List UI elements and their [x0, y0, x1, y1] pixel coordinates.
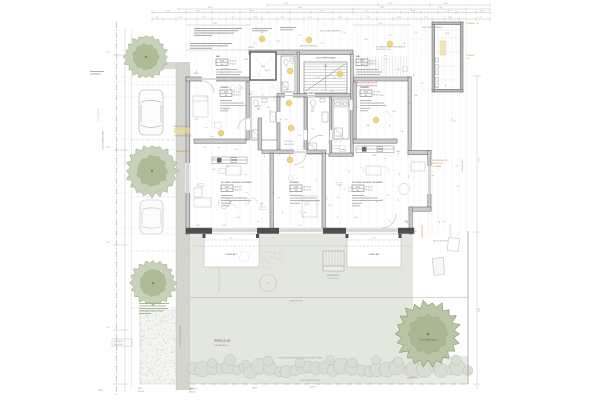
svg-text:562.9: 562.9 [138, 388, 142, 390]
svg-text:563.70: 563.70 [310, 387, 315, 389]
svg-text:2.625: 2.625 [236, 217, 240, 219]
svg-text:6.00: 6.00 [444, 3, 448, 5]
svg-text:1.735: 1.735 [270, 225, 274, 227]
svg-text:12.5: 12.5 [224, 109, 227, 111]
svg-text:FLÄCHE 1447 m²: FLÄCHE 1447 m² [214, 344, 229, 347]
svg-text:4.50: 4.50 [194, 119, 197, 121]
svg-text:2.35: 2.35 [229, 238, 232, 240]
svg-text:563.85: 563.85 [252, 388, 257, 390]
svg-text:BAD: BAD [216, 55, 221, 58]
svg-text:1.25: 1.25 [178, 17, 182, 19]
svg-text:0.88: 0.88 [364, 39, 367, 41]
svg-text:1.51: 1.51 [202, 17, 206, 19]
svg-text:0.25: 0.25 [300, 167, 303, 169]
svg-text:GRENZPUNKT: GRENZPUNKT [114, 341, 124, 343]
svg-text:3.64: 3.64 [384, 59, 387, 61]
svg-text:1.41: 1.41 [308, 17, 312, 19]
svg-text:1.40: 1.40 [230, 17, 234, 19]
svg-text:KOCHEN / ESSEN / WOHNEN: KOCHEN / ESSEN / WOHNEN [221, 182, 252, 184]
svg-text:1.36: 1.36 [338, 17, 342, 19]
svg-text:36: 36 [156, 17, 158, 19]
svg-text:562.75: 562.75 [98, 390, 103, 392]
svg-text:5.52: 5.52 [107, 327, 111, 329]
svg-text:10-07 DIELE: 10-07 DIELE [284, 141, 293, 143]
svg-text:2.41: 2.41 [364, 11, 368, 13]
svg-text:2.625: 2.625 [392, 111, 396, 113]
svg-text:12.10: 12.10 [106, 52, 111, 54]
svg-text:GRENZE 563.4: GRENZE 563.4 [407, 378, 419, 380]
svg-text:5.46: 5.46 [400, 131, 403, 133]
svg-text:2.35: 2.35 [372, 238, 375, 240]
svg-text:1.36: 1.36 [280, 17, 284, 19]
svg-text:2.625: 2.625 [290, 63, 294, 65]
svg-text:10-03: 10-03 [294, 187, 298, 189]
svg-text:HOEHE MIN. 1.00 M: HOEHE MIN. 1.00 M [376, 49, 391, 51]
svg-text:10-05: 10-05 [257, 106, 261, 108]
svg-text:10-06 TREPPENHAUS: 10-06 TREPPENHAUS [316, 57, 336, 60]
svg-text:2.625: 2.625 [196, 225, 200, 227]
svg-text:4.50: 4.50 [366, 125, 369, 127]
svg-text:5.46: 5.46 [266, 107, 269, 109]
svg-text:12.5: 12.5 [388, 35, 391, 37]
svg-text:1.20: 1.20 [282, 87, 285, 89]
svg-text:10-04: 10-04 [220, 61, 224, 63]
svg-text:2.10: 2.10 [284, 3, 288, 5]
svg-text:5.80: 5.80 [380, 7, 384, 9]
svg-text:SCHUTZ H 1.80: SCHUTZ H 1.80 [432, 163, 443, 165]
svg-text:20-01: 20-01 [356, 187, 360, 189]
svg-text:2.36: 2.36 [438, 7, 442, 9]
svg-text:6 STG 17.5/28: 6 STG 17.5/28 [328, 278, 338, 280]
svg-text:2.625: 2.625 [354, 107, 358, 109]
svg-text:2.725: 2.725 [250, 11, 255, 13]
svg-text:4.50: 4.50 [414, 95, 417, 97]
svg-text:3.64: 3.64 [213, 23, 217, 25]
svg-text:2.01: 2.01 [414, 32, 417, 34]
svg-text:1.20: 1.20 [342, 189, 345, 191]
svg-text:0.88: 0.88 [260, 32, 263, 34]
svg-text:10-02: 10-02 [224, 92, 228, 94]
svg-text:4.50: 4.50 [316, 77, 319, 79]
svg-text:5.46: 5.46 [330, 91, 333, 93]
svg-text:0.25: 0.25 [354, 217, 357, 219]
svg-text:STANDORT RGE: STANDORT RGE [289, 300, 303, 303]
svg-text:1.11: 1.11 [424, 17, 428, 19]
svg-text:2.01: 2.01 [386, 195, 389, 197]
svg-text:2.41: 2.41 [298, 35, 301, 37]
svg-text:1 : 1 0 0 B A U M: 1 : 1 0 0 B A U M [97, 108, 100, 121]
svg-text:1.61: 1.61 [366, 17, 370, 19]
svg-text:ZIMMER: ZIMMER [220, 87, 229, 89]
svg-text:21.10: 21.10 [388, 3, 393, 5]
svg-text:0.88: 0.88 [244, 59, 247, 61]
svg-text:15.35: 15.35 [479, 158, 481, 163]
svg-text:3.64: 3.64 [380, 95, 383, 97]
svg-text:9.87: 9.87 [107, 242, 111, 244]
svg-text:20-09: 20-09 [445, 33, 449, 35]
svg-text:KOCHEN / ESSEN / WOHNEN: KOCHEN / ESSEN / WOHNEN [352, 182, 383, 184]
svg-text:1.37: 1.37 [446, 11, 450, 13]
svg-text:10-01: 10-01 [225, 187, 229, 189]
svg-text:4.21: 4.21 [320, 11, 324, 13]
svg-text:20-05: 20-05 [311, 108, 315, 110]
svg-text:VERTEILER UEBERPRUEFEN: VERTEILER UEBERPRUEFEN [356, 86, 377, 88]
svg-text:1.00: 1.00 [478, 17, 482, 19]
svg-text:1.36: 1.36 [448, 17, 452, 19]
svg-text:4.50: 4.50 [396, 69, 399, 71]
svg-text:WEG ZUGANG MARKIERT: WEG ZUGANG MARKIERT [422, 26, 443, 29]
svg-text:1.00: 1.00 [166, 11, 170, 13]
svg-text:PP 204: PP 204 [138, 391, 144, 393]
svg-text:3.64: 3.64 [360, 59, 363, 61]
svg-text:12.5: 12.5 [203, 147, 206, 149]
svg-text:563.95: 563.95 [412, 231, 417, 233]
svg-text:1.20: 1.20 [402, 43, 405, 45]
svg-text:8.46: 8.46 [479, 308, 481, 312]
svg-text:1.96: 1.96 [411, 11, 415, 13]
svg-text:1.25: 1.25 [253, 17, 257, 19]
svg-text:1.525: 1.525 [397, 17, 402, 19]
svg-text:4.425: 4.425 [208, 7, 213, 9]
svg-text:VORPLATZ: VORPLATZ [225, 253, 237, 256]
svg-text:0.62: 0.62 [480, 11, 484, 13]
svg-text:+ 0.60: + 0.60 [466, 58, 470, 60]
svg-text:562.88 / 204.1: 562.88 / 204.1 [114, 344, 123, 346]
svg-text:1.20: 1.20 [276, 41, 279, 43]
svg-text:4.50 FLURABSTAND: 4.50 FLURABSTAND [102, 130, 105, 149]
svg-text:PARZELLE 303: PARZELLE 303 [214, 340, 231, 343]
svg-text:1.50: 1.50 [342, 32, 345, 34]
svg-text:4.50: 4.50 [338, 185, 341, 187]
svg-text:7.235: 7.235 [106, 147, 111, 149]
svg-text:ZIMMER: ZIMMER [290, 182, 299, 184]
svg-text:563.1: 563.1 [190, 388, 194, 390]
svg-text:12.5: 12.5 [298, 135, 301, 137]
svg-text:0.365: 0.365 [234, 149, 238, 151]
svg-text:1.735: 1.735 [328, 205, 332, 207]
svg-text:4.50: 4.50 [298, 225, 301, 227]
svg-text:0.88: 0.88 [372, 155, 375, 157]
svg-text:0.25: 0.25 [320, 43, 323, 45]
svg-text:564.20 m: 564.20 m [189, 392, 197, 394]
svg-text:VORPLATZ: VORPLATZ [368, 253, 380, 256]
svg-text:WEG ZUGANG MARKIERT: WEG ZUGANG MARKIERT [320, 30, 341, 33]
svg-text:+563.70: +563.70 [248, 47, 254, 49]
svg-text:1.20: 1.20 [420, 83, 423, 85]
svg-text:BAD: BAD [356, 55, 361, 58]
svg-text:0.25: 0.25 [310, 145, 313, 147]
svg-text:12.5: 12.5 [212, 169, 215, 171]
svg-text:ALTERSHEIMSTRASSE: ALTERSHEIMSTRASSE [300, 379, 321, 382]
svg-text:0.88: 0.88 [222, 225, 225, 227]
svg-text:10.30: 10.30 [298, 7, 303, 9]
svg-text:1.74: 1.74 [252, 43, 255, 45]
svg-text:20-02: 20-02 [364, 92, 368, 94]
svg-text:2.45: 2.45 [284, 119, 287, 121]
svg-text:3.34: 3.34 [378, 23, 382, 25]
svg-text:2.60: 2.60 [196, 11, 200, 13]
svg-text:0.88: 0.88 [396, 151, 399, 153]
svg-text:+563.70: +563.70 [193, 73, 199, 75]
